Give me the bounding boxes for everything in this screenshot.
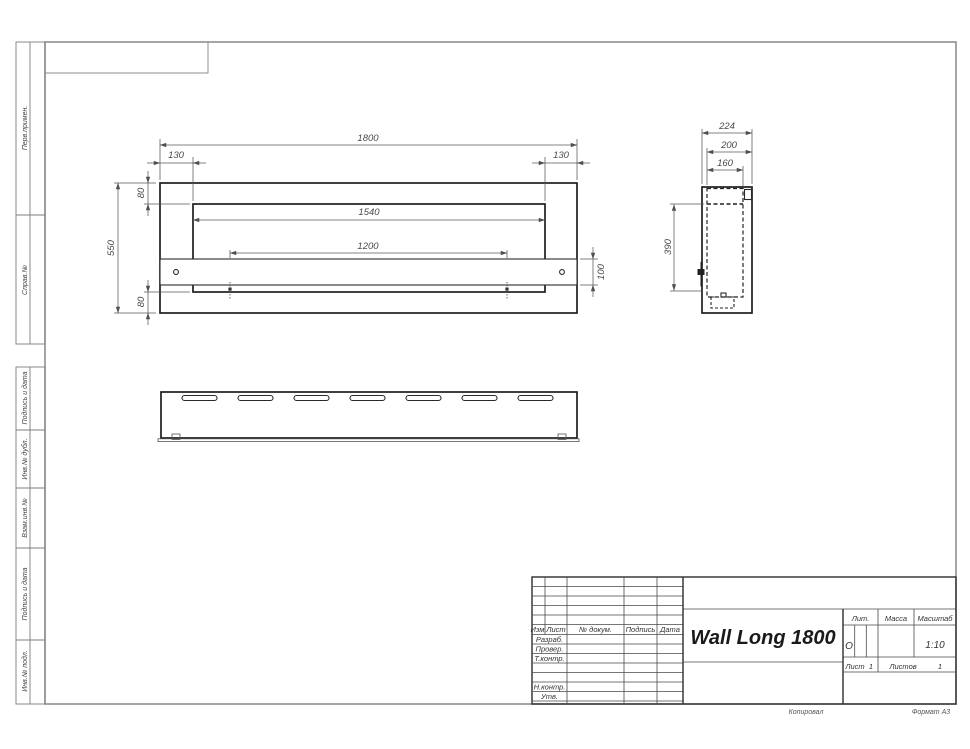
dim-front-overall-height: 550	[106, 239, 117, 256]
margin-label: Подпись и дата	[21, 371, 29, 424]
front-shelf-band	[160, 259, 577, 285]
drawing-canvas: Перв.примен. Справ.№ Подпись и дата Инв.…	[0, 0, 970, 749]
dim-front-overall-width: 1800	[357, 133, 379, 144]
lit-value: О	[845, 641, 853, 652]
sheet-label: Лист	[844, 662, 864, 671]
col-list: Лист	[545, 625, 565, 634]
drawing-title: Wall Long 1800	[690, 627, 835, 649]
drawing-sheet: Перв.примен. Справ.№ Подпись и дата Инв.…	[0, 0, 970, 749]
row-utv: Утв.	[540, 692, 558, 701]
dim-side-overall-depth: 224	[718, 121, 735, 132]
row-razrab: Разраб.	[536, 635, 563, 644]
row-tkontr: Т.контр.	[534, 654, 564, 663]
dim-front-offset-left: 130	[168, 150, 185, 161]
sheets-value: 1	[938, 662, 942, 671]
scale-value: 1:10	[925, 640, 945, 651]
row-prover: Провер.	[536, 645, 564, 654]
col-date: Дата	[659, 625, 680, 634]
margin-label: Справ.№	[22, 265, 29, 295]
dim-front-burner-span: 1200	[357, 241, 379, 252]
col-doc: № докум.	[579, 625, 612, 634]
col-sign: Подпись	[626, 625, 656, 634]
row-nkontr: Н.контр.	[534, 683, 566, 692]
mass-label: Масса	[885, 614, 907, 623]
sheets-label: Листов	[888, 662, 916, 671]
margin-label: Перв.примен.	[22, 106, 29, 151]
dim-front-offset-right: 130	[553, 150, 570, 161]
margin-label: Инв.№ подл.	[21, 650, 29, 692]
margin-label: Инв.№ дубл.	[21, 438, 29, 479]
margin-label: Взам.инв.№	[22, 498, 29, 538]
dim-front-bottom-flange: 80	[136, 296, 147, 307]
dim-side-inner-height: 390	[663, 238, 674, 255]
sheet-value: 1	[869, 662, 873, 671]
copied-label: Копировал	[789, 709, 824, 716]
dim-front-top-flange: 80	[136, 187, 147, 198]
scale-label: Масштаб	[917, 614, 953, 623]
dim-side-box-depth: 160	[717, 158, 734, 169]
format-label: Формат А3	[912, 709, 950, 716]
dim-side-inner-depth: 200	[720, 140, 738, 151]
dim-front-opening-width: 1540	[358, 207, 380, 218]
margin-label: Подпись и дата	[21, 567, 29, 620]
dim-front-shelf-height: 100	[596, 263, 607, 280]
lit-label: Лит.	[851, 614, 870, 623]
col-izm: Изм.	[531, 625, 547, 634]
